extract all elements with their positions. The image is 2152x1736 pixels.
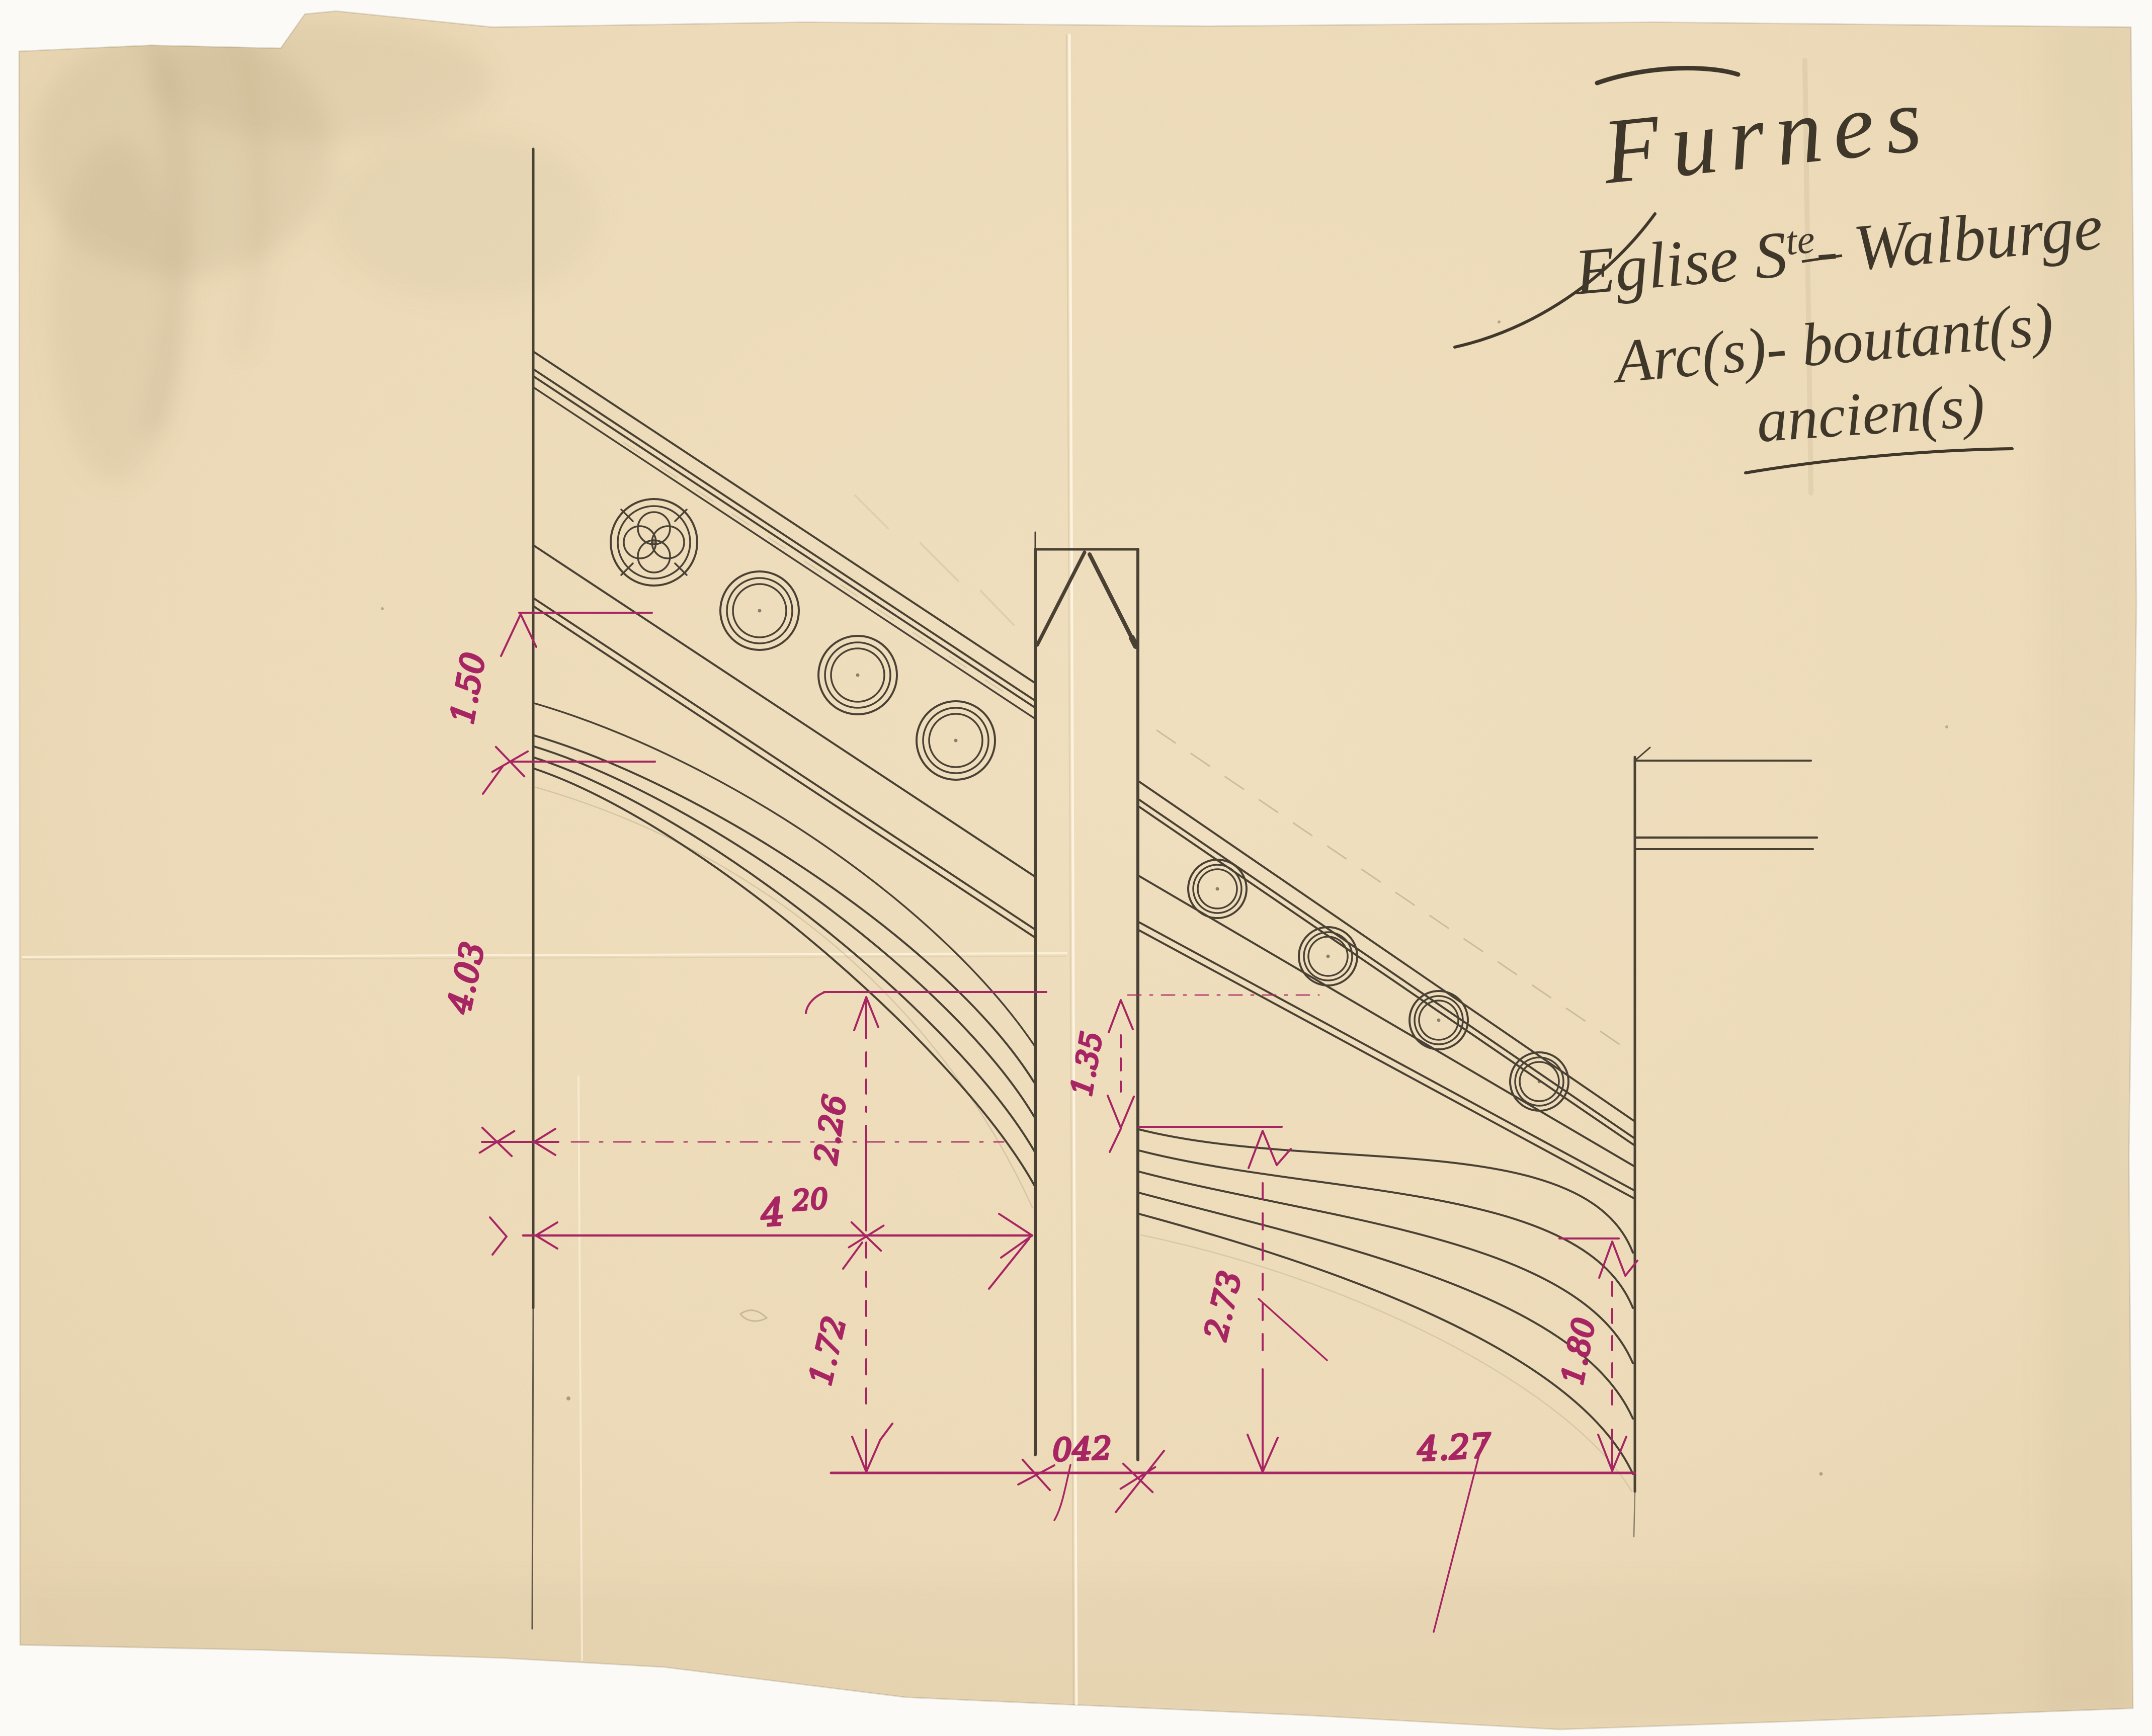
dim-label-0-42: 042 — [1052, 1430, 1113, 1468]
scanned-drawing-sheet: 1.50 4.03 4 20 2.26 — [0, 0, 2152, 1736]
drawing-canvas: 1.50 4.03 4 20 2.26 — [0, 0, 2152, 1736]
circle-medallion — [1299, 927, 1357, 985]
title-building-sup: te — [1784, 217, 1816, 264]
circle-medallion — [1410, 991, 1468, 1049]
circle-medallion — [917, 701, 995, 780]
dim-label-4-20-sup: 20 — [791, 1183, 830, 1218]
dim-label-4-20-int: 4 — [759, 1191, 786, 1235]
left-wall-line — [532, 149, 533, 1629]
circle-medallion — [1510, 1052, 1568, 1111]
circle-medallion — [818, 636, 897, 714]
circle-medallion — [720, 571, 799, 650]
circle-medallion — [1188, 860, 1247, 918]
quatrefoil-medallion — [611, 499, 697, 586]
